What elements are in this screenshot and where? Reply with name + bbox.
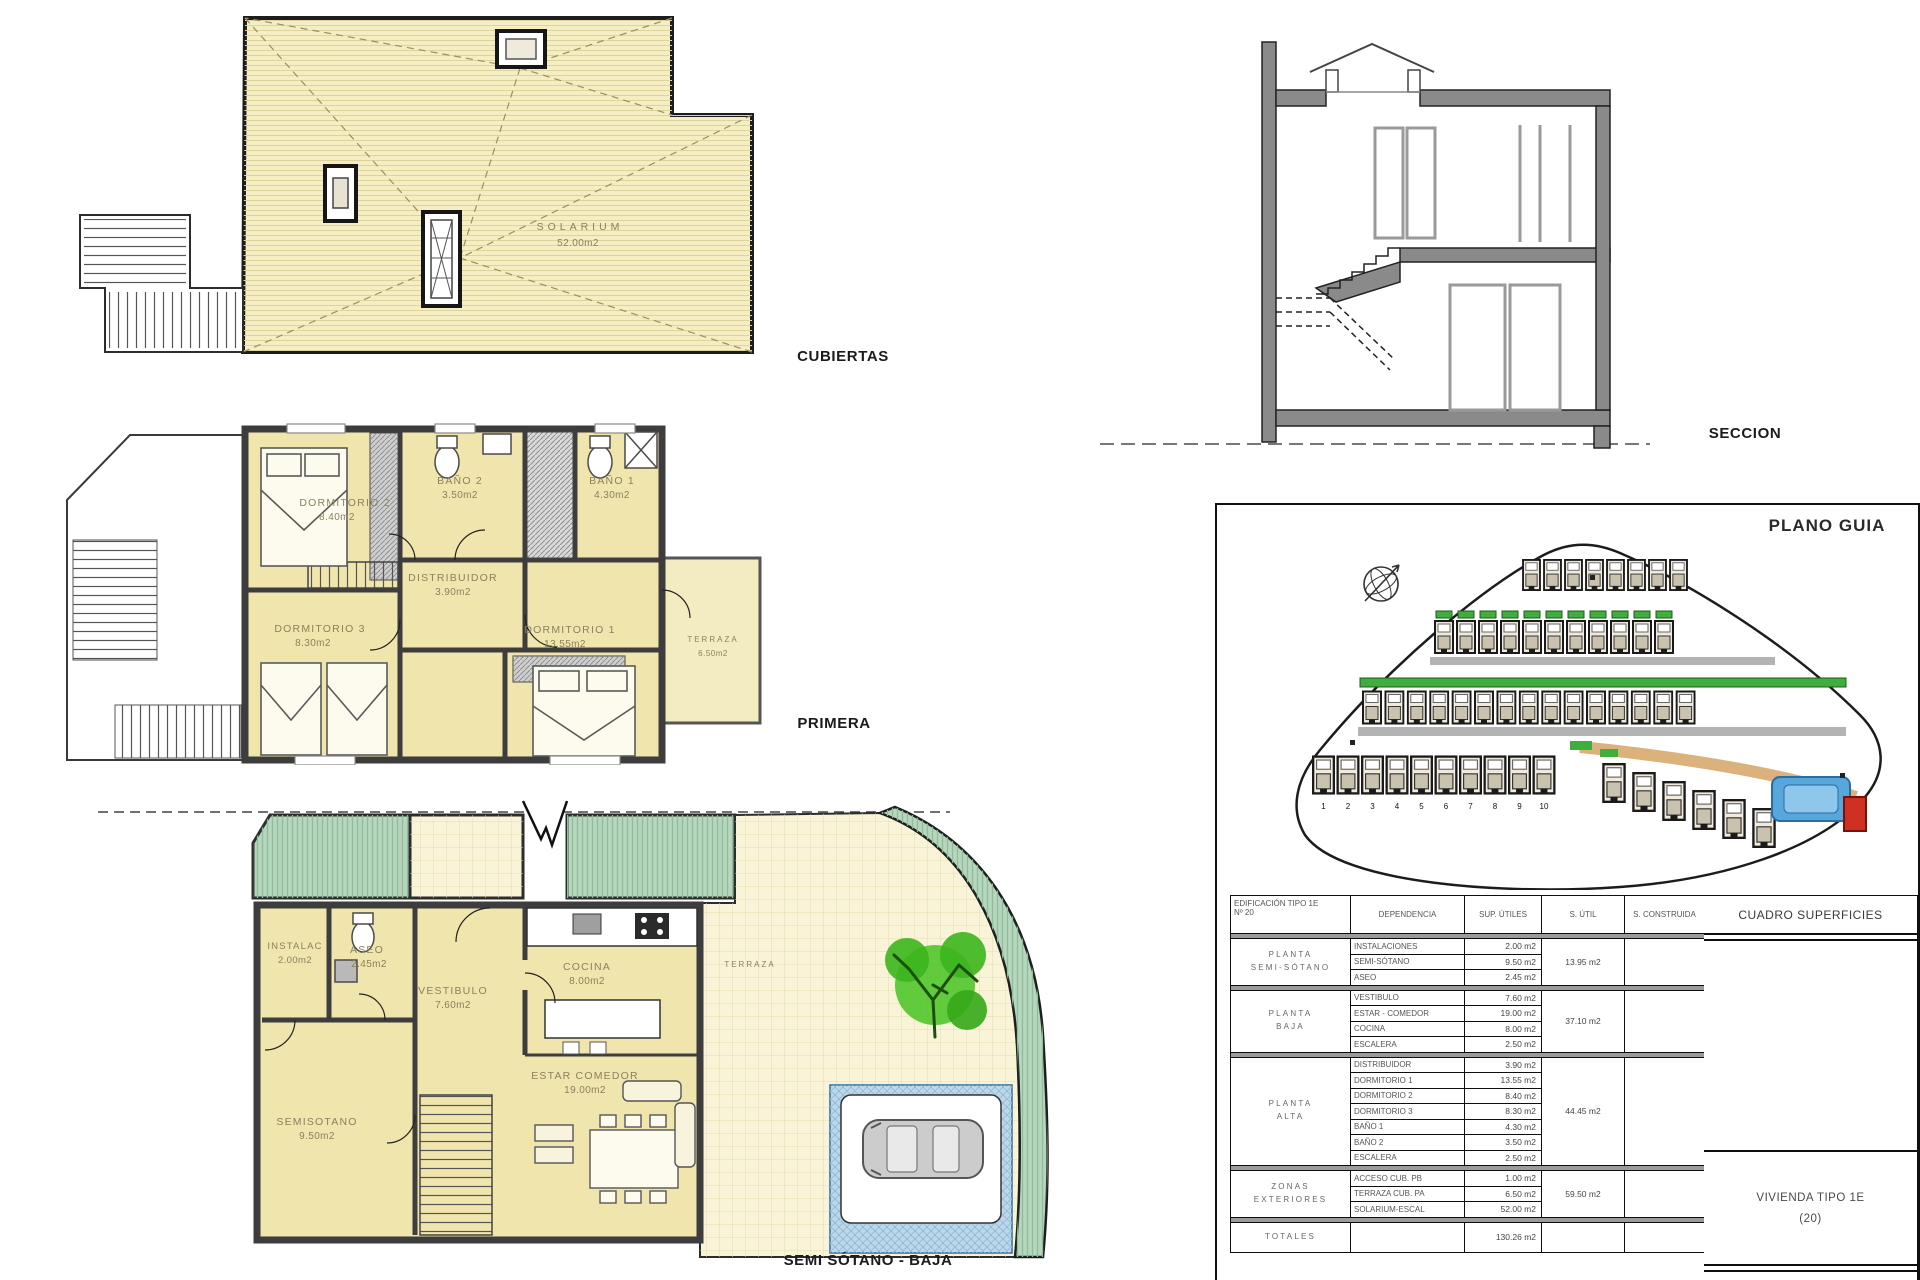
vivienda-tipo-number: (20) — [1799, 1213, 1821, 1225]
room-name-cell: ASEO — [1351, 970, 1465, 986]
col-sup-utiles: SUP. ÚTILES — [1465, 896, 1542, 934]
distribuidor-label: DISTRIBUIDOR — [408, 572, 498, 584]
room-name-cell: VESTIBULO — [1351, 990, 1465, 1006]
room-value-cell: 2.50 m2 — [1465, 1037, 1542, 1053]
first-floor-drawing: DORMITORIO 2 8.40m2 BAÑO 2 3.50m2 BAÑO 1… — [55, 420, 815, 765]
terraza-p1-label: TERRAZA — [687, 635, 738, 644]
instalac-label: INSTALAC — [267, 941, 322, 952]
room-name-cell: ESTAR - COMEDOR — [1351, 1006, 1465, 1022]
col-s-util: S. ÚTIL — [1542, 896, 1625, 934]
construida-cell — [1625, 939, 1705, 986]
semisotano-label: SEMISOTANO — [276, 1116, 357, 1128]
semisotano-area: 9.50m2 — [299, 1131, 335, 1142]
roof-plan-title: CUBIERTAS — [797, 348, 889, 365]
terrace-green-left — [253, 815, 410, 898]
building-type-cell: EDIFICACIÓN TIPO 1E Nº 20 — [1231, 896, 1351, 934]
planta-baja-cell: PLANTA BAJA — [1231, 990, 1351, 1052]
room-value-cell: 8.00 m2 — [1465, 1021, 1542, 1037]
empty-cell — [1704, 1271, 1918, 1280]
terrace-grid-strip — [410, 815, 523, 898]
room-value-cell: 1.00 m2 — [1465, 1171, 1542, 1187]
bano2-label: BAÑO 2 — [437, 474, 483, 487]
subtotal-cell: 37.10 m2 — [1542, 990, 1625, 1052]
svg-text:10: 10 — [1540, 802, 1549, 811]
ground-floor-title: SEMI SÓTANO - BAJA — [784, 1252, 953, 1269]
bano2-area: 3.50m2 — [442, 490, 478, 501]
dormitorio2-area: 8.40m2 — [319, 512, 355, 523]
site-units-row3 — [1363, 692, 1695, 724]
svg-text:6: 6 — [1444, 802, 1449, 811]
terraza-p1-area: 6.50m2 — [698, 649, 728, 658]
room-name-cell: ACCESO CUB. PB — [1351, 1171, 1465, 1187]
site-plan-drawing: 12345678910 — [1260, 535, 1920, 890]
svg-text:2: 2 — [1346, 802, 1351, 811]
dormitorio3-label: DORMITORIO 3 — [274, 623, 365, 635]
room-value-cell: 9.50 m2 — [1465, 954, 1542, 970]
room-value-cell: 19.00 m2 — [1465, 1006, 1542, 1022]
cocina-area: 8.00m2 — [569, 976, 605, 987]
site-units-row2 — [1435, 611, 1673, 653]
table-title: CUADRO SUPERFICIES — [1704, 895, 1918, 934]
instalac-area: 2.00m2 — [278, 955, 312, 966]
architectural-sheet: SOLARIUM 52.00m2 CUBIERTAS — [0, 0, 1920, 1280]
dormitorio3-area: 8.30m2 — [295, 638, 331, 649]
first-floor-title: PRIMERA — [797, 715, 870, 732]
highlighted-plot — [1844, 797, 1866, 831]
plano-guia-title: PLANO GUIA — [1737, 516, 1917, 536]
room-name-cell: INSTALACIONES — [1351, 939, 1465, 955]
roof-plan-drawing: SOLARIUM 52.00m2 — [60, 8, 780, 376]
solarium-label: SOLARIUM — [537, 221, 624, 233]
estar-comedor-area: 19.00m2 — [564, 1085, 606, 1096]
zonas-exteriores-cell: ZONAS EXTERIORES — [1231, 1171, 1351, 1218]
terraza-ground-label: TERRAZA — [724, 960, 775, 969]
roof-access-ladder — [423, 212, 460, 306]
room-name-cell: TERRAZA CUB. PA — [1351, 1186, 1465, 1202]
entry-notch-arrow — [523, 801, 567, 845]
section-title: SECCION — [1709, 425, 1782, 442]
room-value-cell: 8.40 m2 — [1465, 1088, 1542, 1104]
col-dependencia: DEPENDENCIA — [1351, 896, 1465, 934]
svg-text:5: 5 — [1419, 802, 1424, 811]
skylight — [1310, 44, 1434, 92]
room-value-cell: 6.50 m2 — [1465, 1186, 1542, 1202]
building-type-label: EDIFICACIÓN TIPO 1E — [1234, 899, 1347, 908]
bed-dormitorio1 — [533, 666, 635, 756]
green-strip — [1360, 678, 1846, 687]
empty-cell — [1351, 1222, 1465, 1252]
section-drawing — [1100, 30, 1650, 460]
subtotal-cell: 59.50 m2 — [1542, 1171, 1625, 1218]
room-name-cell: DORMITORIO 1 — [1351, 1073, 1465, 1089]
svg-text:8: 8 — [1493, 802, 1498, 811]
distribuidor-area: 3.90m2 — [435, 587, 471, 598]
aseo-label: ASEO — [350, 944, 384, 956]
totales-label-cell: TOTALES — [1231, 1222, 1351, 1252]
construida-cell — [1625, 1057, 1705, 1166]
svg-text:1: 1 — [1321, 802, 1326, 811]
roof-stairs-wing — [80, 215, 243, 352]
upper-doors — [1375, 128, 1435, 238]
surfaces-table: EDIFICACIÓN TIPO 1E Nº 20 DEPENDENCIA SU… — [1230, 895, 1918, 1253]
room-value-cell: 2.45 m2 — [1465, 970, 1542, 986]
totales-value-cell: 130.26 m2 — [1465, 1222, 1542, 1252]
shaft-hatch — [527, 432, 573, 558]
room-value-cell: 13.55 m2 — [1465, 1073, 1542, 1089]
bano1-area: 4.30m2 — [594, 490, 630, 501]
vivienda-tipo-label: VIVIENDA TIPO 1E — [1756, 1192, 1864, 1204]
room-name-cell: ESCALERA — [1351, 1150, 1465, 1166]
dormitorio1-label: DORMITORIO 1 — [524, 624, 615, 636]
room-value-cell: 2.00 m2 — [1465, 939, 1542, 955]
cuadro-superficies-column: CUADRO SUPERFICIES VIVIENDA TIPO 1E (20) — [1704, 895, 1918, 1280]
estar-comedor-label: ESTAR COMEDOR — [531, 1070, 639, 1082]
subtotal-cell: 44.45 m2 — [1542, 1057, 1625, 1166]
road-strip-lower — [1358, 727, 1846, 736]
construida-cell — [1625, 1171, 1705, 1218]
pool-inner — [1784, 785, 1838, 813]
room-value-cell: 4.30 m2 — [1465, 1119, 1542, 1135]
roof-chimney — [325, 166, 356, 221]
solarium-area: 52.00m2 — [557, 238, 599, 249]
road-strip-upper — [1430, 657, 1775, 665]
room-name-cell: COCINA — [1351, 1021, 1465, 1037]
dormitorio1-area: 13.55m2 — [544, 639, 586, 650]
vestibulo-label: VESTIBULO — [418, 985, 488, 997]
room-name-cell: DORMITORIO 3 — [1351, 1104, 1465, 1120]
construida-cell — [1625, 990, 1705, 1052]
svg-text:7: 7 — [1468, 802, 1473, 811]
subtotal-cell: 13.95 m2 — [1542, 939, 1625, 986]
svg-text:9: 9 — [1517, 802, 1522, 811]
empty-cell — [1625, 1222, 1705, 1252]
col-s-construida: S. CONSTRUIDA — [1625, 896, 1705, 934]
bano1-label: BAÑO 1 — [589, 474, 635, 487]
room-name-cell: ESCALERA — [1351, 1037, 1465, 1053]
room-name-cell: SEMI-SÓTANO — [1351, 954, 1465, 970]
plano-guia-panel: PLANO GUIA 12345678910 — [1215, 503, 1920, 1280]
stairs-ground — [420, 1095, 492, 1235]
room-value-cell: 3.50 m2 — [1465, 1135, 1542, 1151]
ground-floor-drawing: INSTALAC 2.00m2 ASEO 2.45m2 VESTIBULO 7.… — [95, 795, 1085, 1280]
stairs-section — [1276, 248, 1400, 370]
empty-cell — [1704, 940, 1918, 1151]
svg-text:4: 4 — [1395, 802, 1400, 811]
dormitorio2-label: DORMITORIO 2 — [299, 497, 390, 509]
room-name-cell: DISTRIBUIDOR — [1351, 1057, 1465, 1073]
vestibulo-area: 7.60m2 — [435, 1000, 471, 1011]
room-name-cell: SOLARIUM-ESCAL — [1351, 1202, 1465, 1218]
vivienda-tipo-cell: VIVIENDA TIPO 1E (20) — [1704, 1151, 1918, 1265]
empty-cell — [1542, 1222, 1625, 1252]
roof-skylight — [497, 31, 545, 67]
lower-door — [1450, 285, 1560, 410]
building-number: Nº 20 — [1234, 908, 1347, 917]
aseo-area: 2.45m2 — [351, 959, 387, 970]
room-value-cell: 2.50 m2 — [1465, 1150, 1542, 1166]
cocina-label: COCINA — [563, 961, 611, 973]
stairs-annex — [67, 435, 245, 760]
upper-windows — [1520, 125, 1570, 242]
room-value-cell: 3.90 m2 — [1465, 1057, 1542, 1073]
room-value-cell: 8.30 m2 — [1465, 1104, 1542, 1120]
terrace-green-mid — [567, 815, 735, 898]
room-name-cell: BAÑO 2 — [1351, 1135, 1465, 1151]
svg-text:3: 3 — [1370, 802, 1375, 811]
room-value-cell: 52.00 m2 — [1465, 1202, 1542, 1218]
room-name-cell: DORMITORIO 2 — [1351, 1088, 1465, 1104]
surfaces-table-grid: EDIFICACIÓN TIPO 1E Nº 20 DEPENDENCIA SU… — [1230, 895, 1705, 1253]
planta-semisotano-cell: PLANTA SEMI-SÓTANO — [1231, 939, 1351, 986]
car — [863, 1120, 983, 1178]
planta-alta-cell: PLANTA ALTA — [1231, 1057, 1351, 1166]
room-name-cell: BAÑO 1 — [1351, 1119, 1465, 1135]
room-value-cell: 7.60 m2 — [1465, 990, 1542, 1006]
